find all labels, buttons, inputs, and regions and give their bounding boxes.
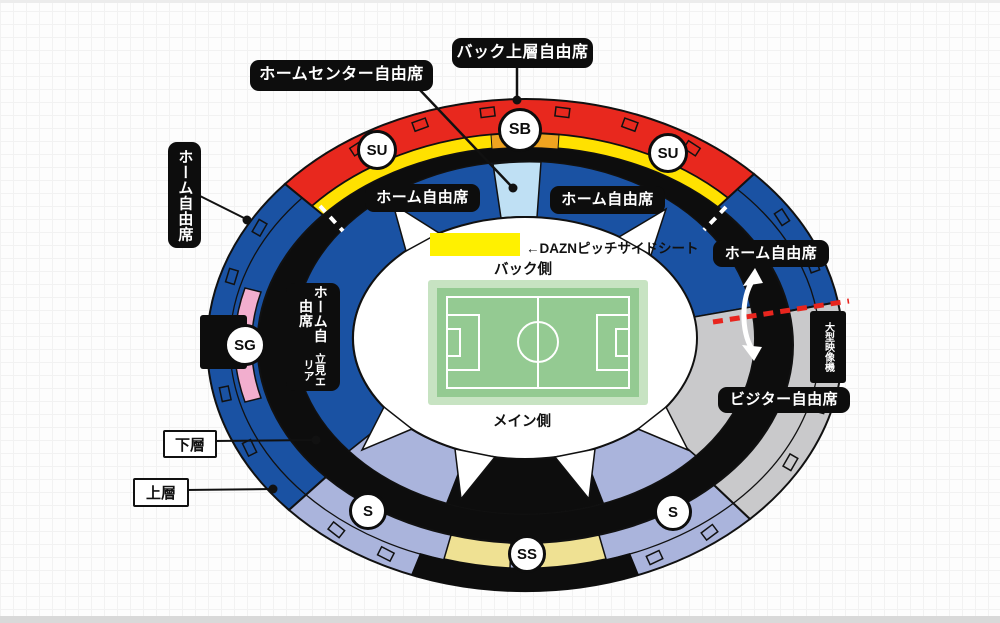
label-text: バック側 (494, 262, 552, 278)
label-text: ←DAZNピッチサイドシート (526, 241, 699, 256)
label-standing-area: ホーム自由席 立見エリア (286, 283, 340, 391)
label-text: ホーム自由席 (177, 149, 193, 242)
pointer-dot (509, 184, 518, 193)
label-big-screen: 大型映像機 (814, 314, 842, 380)
label-lower-tier: 下層 (163, 430, 217, 458)
label-text: ホーム自由席 (298, 283, 327, 344)
label-text: ホーム自由席 (725, 246, 818, 262)
pointer-dot (312, 436, 321, 445)
stadium-seating-map: バック上層自由席 ホームセンター自由席 ホーム自由席 ホーム自由席 ホーム自由席… (0, 0, 1000, 623)
label-upper-tier: 上層 (133, 478, 189, 507)
label-text: メイン側 (493, 414, 551, 430)
label-text: 立見エリア (301, 350, 324, 391)
pointer-dot (269, 485, 278, 494)
label-home-left: ホーム自由席 (168, 142, 201, 248)
label-back-upper: バック上層自由席 (452, 38, 593, 68)
badge-s-right: S (654, 493, 692, 531)
page-bottom-strip (0, 616, 1000, 623)
badge-ss: SS (508, 535, 546, 573)
pitch (428, 280, 648, 405)
badge-sg: SG (224, 324, 266, 366)
pointer-upper-tier (185, 489, 273, 490)
badge-text: S (363, 503, 373, 520)
badge-s-left: S (349, 492, 387, 530)
label-home-right: ホーム自由席 (713, 240, 829, 267)
pointer-dot (513, 96, 522, 105)
pointer-lower-tier (213, 440, 316, 441)
label-home-inner-right: ホーム自由席 (550, 186, 665, 214)
badge-text: SG (234, 337, 256, 354)
label-text: ホームセンター自由席 (259, 67, 424, 84)
label-text: 大型映像機 (821, 322, 836, 372)
badge-su-left: SU (357, 130, 397, 170)
label-dazn: ←DAZNピッチサイドシート (526, 237, 699, 257)
badge-text: SB (509, 121, 531, 139)
pointer-dot (243, 216, 252, 225)
label-main-side: メイン側 (467, 410, 577, 431)
badge-text: SU (367, 142, 388, 159)
label-text: ホーム自由席 (376, 190, 469, 206)
badge-su-right: SU (648, 133, 688, 173)
label-visitor: ビジター自由席 (718, 387, 850, 413)
label-back-side: バック側 (468, 258, 578, 279)
label-text: バック上層自由席 (456, 45, 588, 62)
dazn-swatch (430, 233, 520, 256)
badge-text: S (668, 504, 678, 521)
label-text: ホーム自由席 (561, 192, 654, 208)
stadium-diagram-svg (0, 0, 1000, 623)
label-home-center: ホームセンター自由席 (250, 60, 433, 91)
label-text: ビジター自由席 (730, 392, 838, 408)
badge-sb: SB (498, 108, 542, 152)
pointer-home-left (200, 196, 246, 219)
badge-text: SS (517, 546, 537, 563)
label-text: 上層 (146, 482, 176, 503)
label-home-inner-left: ホーム自由席 (365, 184, 480, 212)
badge-text: SU (658, 145, 679, 162)
label-text: 下層 (175, 434, 205, 455)
